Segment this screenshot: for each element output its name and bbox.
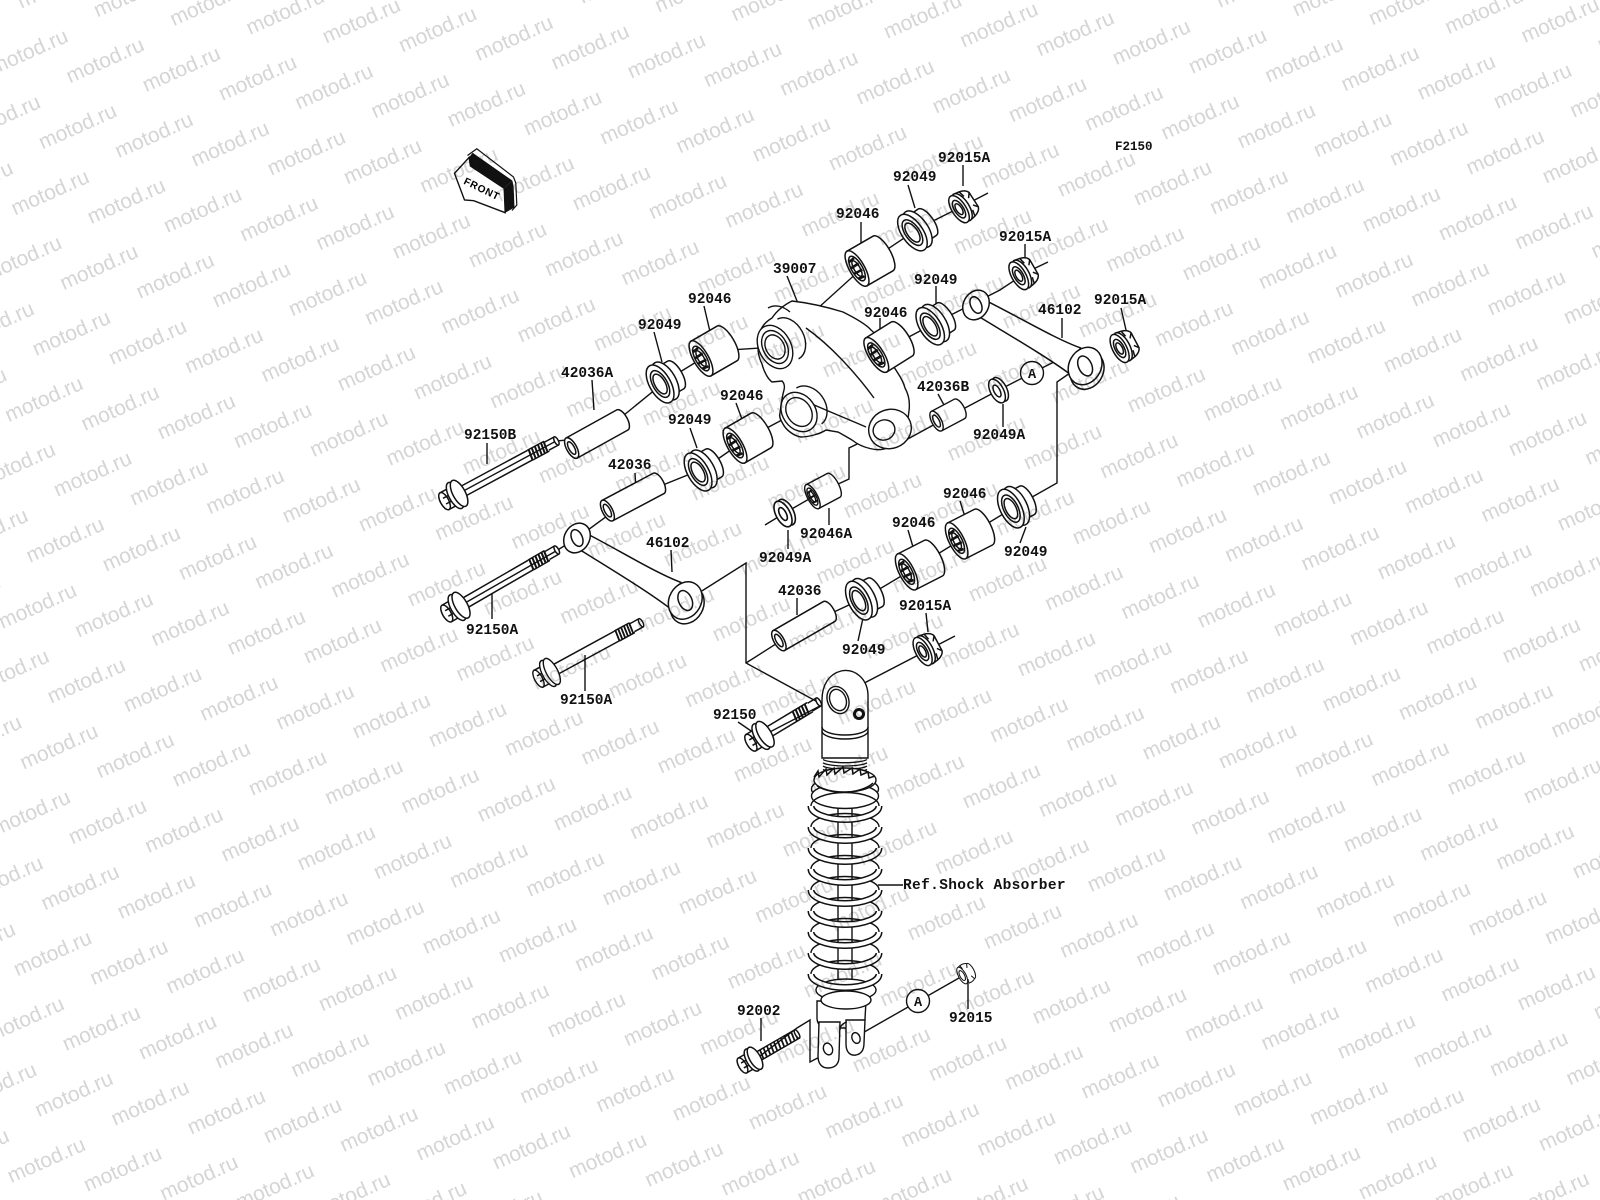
svg-text:92150A: 92150A (560, 693, 613, 709)
svg-text:42036B: 42036B (917, 380, 970, 396)
svg-text:92015A: 92015A (899, 599, 952, 615)
svg-text:92150A: 92150A (466, 623, 519, 639)
svg-text:92150: 92150 (713, 708, 757, 724)
svg-text:Ref.Shock Absorber: Ref.Shock Absorber (903, 878, 1066, 894)
